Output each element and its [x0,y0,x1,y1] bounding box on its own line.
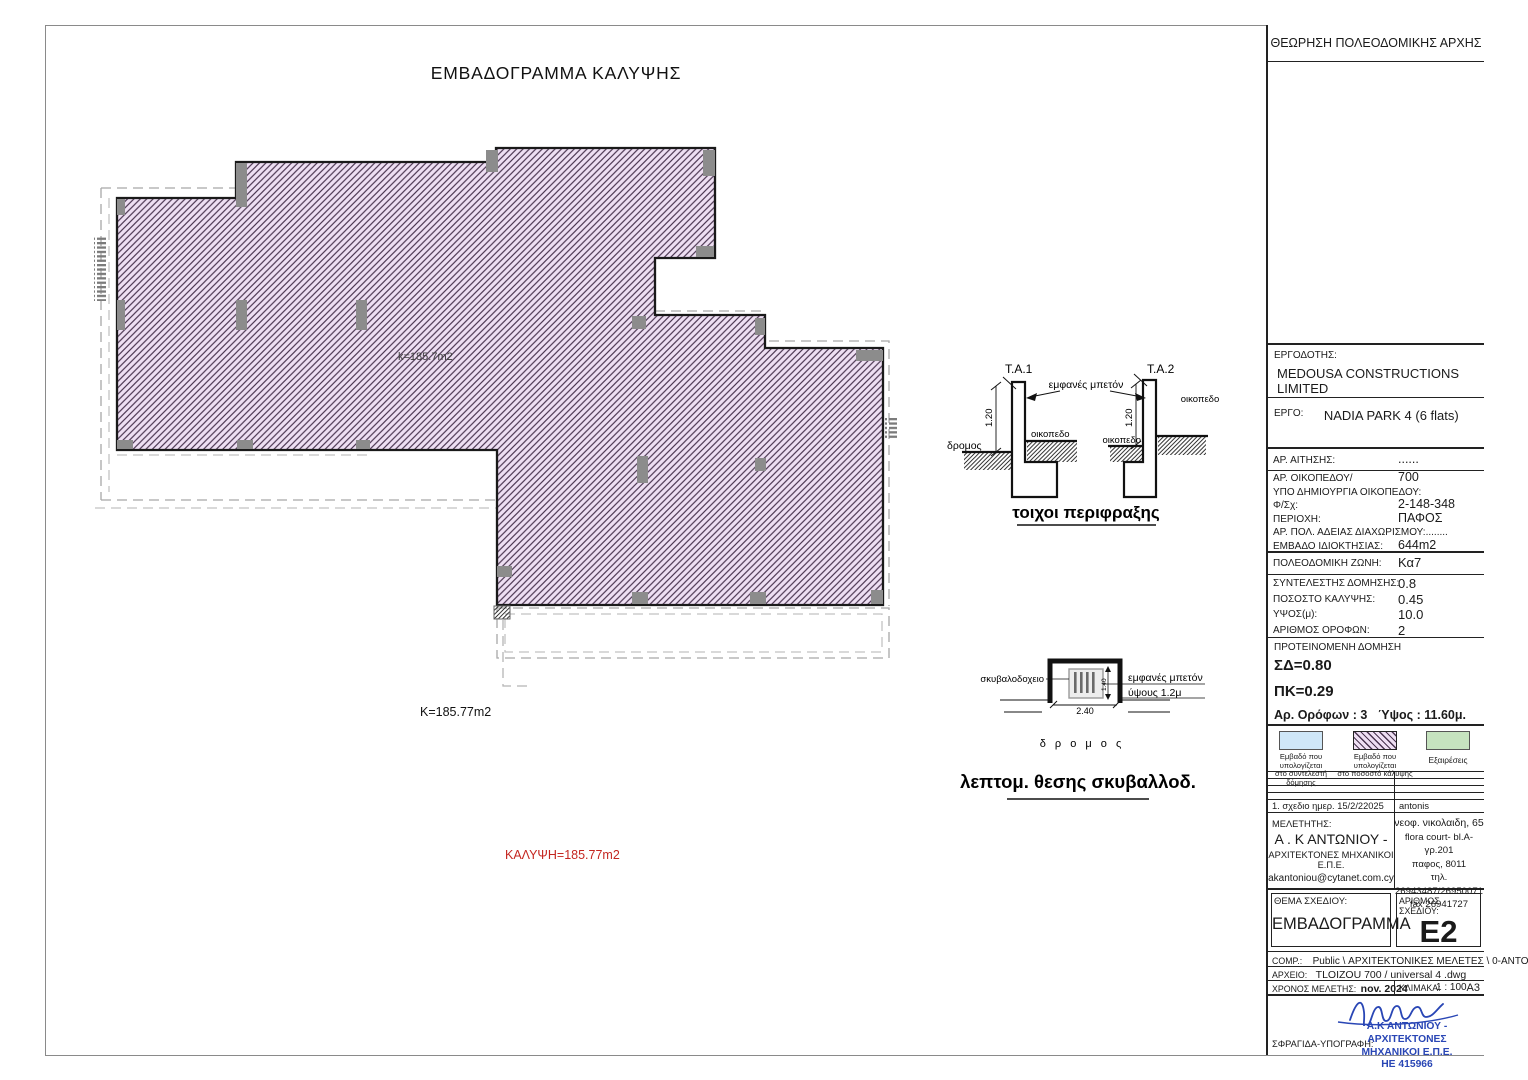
subject-value: ΕΜΒΑΔΟΓΡΑΜΜΑ [1272,915,1390,934]
factor-value: 10.0 [1398,607,1423,623]
stamp-label: ΣΦΡΑΓΙΔΑ-ΥΠΟΓΡΑΦΗ: [1272,1039,1374,1049]
revision-author: antonis [1399,801,1429,811]
wall-dim-1: 1.20 [984,409,995,428]
file-value: TLOIZOU 700 / universal 4 .dwg [1316,969,1467,981]
factor-value: 0.45 [1398,592,1423,608]
factor-label: ΥΨΟΣ(μ): [1273,607,1317,623]
time-label: ΧΡΟΝΟΣ ΜΕΛΕΤΗΣ: [1268,984,1356,994]
bin-height-dim: 1.40 [1101,678,1108,691]
proposed-pk: ΠΚ=0.29 [1274,683,1484,700]
bin-concrete-label-1: εμφανές μπετόν [1128,672,1203,684]
field-label: ΕΜΒΑΔΟ ΙΔΙΟΚΤΗΣΙΑΣ: [1273,540,1383,554]
field-value: 2-148-348 [1398,498,1455,512]
field-label: ΠΕΡΙΟΧΗ: [1273,513,1321,527]
comp-row: COMP.: Public \ ΑΡΧΙΤΕΚΤΟΝΙΚΕΣ ΜΕΛΕΤΕΣ \… [1268,952,1484,967]
stamp-line-3: ΗΕ 415966 [1332,1059,1482,1072]
factor-label: ΠΟΣΟΣΤΟ ΚΑΛΥΨΗΣ: [1273,592,1375,608]
zone-value: Κα7 [1398,556,1421,570]
stamp-section: Α.Κ ΑΝΤΩΝΙΟΥ - ΑΡΧΙΤΕΚΤΟΝΕΣ ΜΗΧΑΝΙΚΟΙ Ε.… [1268,996,1484,1055]
proposed-header: ΠΡΟΤΕΙΝΟΜΕΝΗ ΔΟΜΗΣΗ [1274,642,1484,653]
designer-label: ΜΕΛΕΤΗΤΗΣ: [1268,813,1394,829]
bin-label: σκυβαλοδοχειο [980,674,1044,685]
project-label: ΕΡΓΟ: [1274,408,1303,419]
subject-box: ΘΕΜΑ ΣΧΕΔΙΟΥ: ΕΜΒΑΔΟΓΡΑΜΜΑ [1271,893,1391,947]
subject-label: ΘΕΜΑ ΣΧΕΔΙΟΥ: [1272,894,1390,907]
bin-concrete-label-2: ύψους 1.2μ [1128,687,1181,699]
designer-address-line: νεοφ. νικολαιδη, 65 [1394,817,1484,831]
legend-swatch-building-factor [1279,731,1323,750]
number-label: ΑΡΙΘΜΟΣ ΣΧΕΔΙΟΥ: [1397,894,1480,916]
road-label: δρομος [947,440,982,452]
designer-email: akantoniou@cytanet.com.cy [1268,873,1394,884]
number-value: E2 [1397,914,1480,950]
file-row: ΑΡΧΕΙΟ: TLOIZOU 700 / universal 4 .dwg [1268,967,1484,981]
proposed-height: Ύψος : 11.60μ. [1378,708,1466,722]
file-label: ΑΡΧΕΙΟ: [1268,970,1307,980]
number-box: ΑΡΙΘΜΟΣ ΣΧΕΔΙΟΥ: E2 [1396,893,1481,947]
refuse-bin-detail: σκυβαλοδοχειο εμφανές μπετόν ύψους 1.2μ … [960,661,1205,799]
revision-entry: 1. σχεδιο ημερ. 15/2/22025 [1272,801,1384,811]
factors-section: ΣΥΝΤΕΛΕΣΤΗΣ ΔΟΜΗΣΗΣ:0.8 ΠΟΣΟΣΤΟ ΚΑΛΥΨΗΣ:… [1268,575,1484,638]
proposed-floors: Αρ. Ορόφων : 3 [1274,708,1367,722]
scale-label: ΚΛΙΜΑΚΑ: [1399,981,1441,995]
legend-section: Εμβαδό που υπολογίζεταιστο συντελεστή δό… [1268,726,1484,772]
title-block: ΘΕΩΡΗΣΗ ΠΟΛΕΟΔΟΜΙΚΗΣ ΑΡΧΗΣ ΕΡΓΟΔΟΤΗΣ: ME… [1266,25,1484,1055]
application-row: ΑΡ. ΑΙΤΗΣΗΣ: ...... [1268,449,1484,471]
plot-label-2: οικοπεδο [1102,435,1141,446]
application-value: ...... [1398,453,1419,467]
drawing-sheet: ΕΜΒΑΔΟΓΡΑΜΜΑ ΚΑΛΥΨΗΣ [0,0,1528,1080]
revision-table: 1. σχεδιο ημερ. 15/2/22025 antonis [1268,772,1484,812]
designer-section: ΜΕΛΕΤΗΤΗΣ: Α . Κ ΑΝΤΩΝΙΟΥ - ΑΡΧΙΤΕΚΤΟΝΕΣ… [1268,812,1484,890]
approval-stamp-space [1268,62,1484,345]
bin-detail-title: λεπτομ. θεσης σκυβαλλοδ. [960,771,1196,792]
zone-row: ΠΟΛΕΟΔΟΜΙΚΗ ΖΩΝΗ: Κα7 [1268,553,1484,575]
designer-address-line: παφος, 8011 [1394,858,1484,872]
drawing-title: ΕΜΒΑΔΟΓΡΑΜΜΑ ΚΑΛΥΨΗΣ [431,63,681,83]
factor-label: ΑΡΙΘΜΟΣ ΟΡΟΦΩΝ: [1273,623,1370,639]
client-label: ΕΡΓΟΔΟΤΗΣ: [1274,350,1484,361]
coverage-label: ΚΑΛΥΨΗ=185.77m2 [505,848,620,862]
building-footprint [117,148,883,605]
ta2-label: Τ.Α.2 [1147,362,1175,376]
legend-swatch-coverage [1353,731,1397,750]
exposed-concrete-label: εμφανές μπετόν [1049,379,1124,391]
scale-value: 1 : 100 [1436,981,1467,995]
comp-label: COMP.: [1268,956,1302,966]
plot-label-3: οικοπεδο [1181,394,1220,405]
fence-wall-detail: Τ.Α.1 Τ.Α.2 εμφανές μπετόν δρομος οικοπε… [947,362,1219,525]
proposed-sd: ΣΔ=0.80 [1274,657,1484,674]
wall-dim-2: 1.20 [1124,409,1135,428]
factor-value: 0.8 [1398,576,1416,592]
field-value: ΠΑΦΟΣ [1398,512,1442,526]
application-label: ΑΡ. ΑΙΤΗΣΗΣ: [1273,454,1335,468]
client-name: MEDOUSA CONSTRUCTIONS LIMITED [1277,366,1484,396]
proposed-section: ΠΡΟΤΕΙΝΟΜΕΝΗ ΔΟΜΗΣΗ ΣΔ=0.80 ΠΚ=0.29 Αρ. … [1268,638,1484,726]
field-label: Φ/Σχ: [1273,499,1298,513]
bin-width-dim: 2.40 [1076,706,1094,716]
approval-header-text: ΘΕΩΡΗΣΗ ΠΟΛΕΟΔΟΜΙΚΗΣ ΑΡΧΗΣ [1270,36,1481,50]
legend-label-3: Εξαιρέσεις [1410,756,1486,765]
bin-road-label: δ ρ ο μ ο ς [1040,738,1125,750]
field-value: 700 [1398,471,1419,485]
boundary-corner-hatch [494,606,510,619]
approval-header: ΘΕΩΡΗΣΗ ΠΟΛΕΟΔΟΜΙΚΗΣ ΑΡΧΗΣ [1268,25,1484,62]
field-value: 644m2 [1398,539,1436,553]
zone-label: ΠΟΛΕΟΔΟΜΙΚΗ ΖΩΝΗ: [1273,557,1382,571]
client-section: ΕΡΓΟΔΟΤΗΣ: MEDOUSA CONSTRUCTIONS LIMITED [1268,345,1484,398]
factor-label: ΣΥΝΤΕΛΕΣΤΗΣ ΔΟΜΗΣΗΣ: [1273,576,1399,592]
designer-address-line: flora court- bl.A- γρ.201 [1394,831,1484,858]
project-name: NADIA PARK 4 (6 flats) [1324,408,1459,423]
factor-value: 2 [1398,623,1405,639]
designer-name: Α . Κ ΑΝΤΩΝΙΟΥ - [1268,831,1394,847]
legend-swatch-exceptions [1426,731,1470,750]
designer-firm: ΑΡΧΙΤΕΚΤΟΝΕΣ ΜΗΧΑΝΙΚΟΙ Ε.Π.Ε. [1268,850,1394,870]
inner-area-label: k=185.7m2 [398,351,453,363]
ta1-label: Τ.Α.1 [1005,362,1033,376]
plot-label-1: οικοπεδο [1031,429,1070,440]
fence-detail-title: τοιχοι περιφραξης [1012,503,1160,522]
comp-value: Public \ ΑΡΧΙΤΕΚΤΟΝΙΚΕΣ ΜΕΛΕΤΕΣ \ 0-ANTO… [1313,956,1528,967]
subject-number-section: ΘΕΜΑ ΣΧΕΔΙΟΥ: ΕΜΒΑΔΟΓΡΑΜΜΑ ΑΡΙΘΜΟΣ ΣΧΕΔΙ… [1268,890,1484,952]
time-scale-row: ΧΡΟΝΟΣ ΜΕΛΕΤΗΣ: nov. 2024 ΚΛΙΜΑΚΑ: 1 : 1… [1268,981,1484,996]
area-label: K=185.77m2 [420,705,491,719]
paper-size: A3 [1467,981,1480,995]
field-label: ΑΡ. ΟΙΚΟΠΕΔΟΥ/ [1273,472,1353,486]
plot-fields: ΑΡ. ΟΙΚΟΠΕΔΟΥ/700 ΥΠΟ ΔΗΜΙΟΥΡΓΙΑ ΟΙΚΟΠΕΔ… [1268,471,1484,553]
project-section: ΕΡΓΟ: NADIA PARK 4 (6 flats) [1268,398,1484,449]
